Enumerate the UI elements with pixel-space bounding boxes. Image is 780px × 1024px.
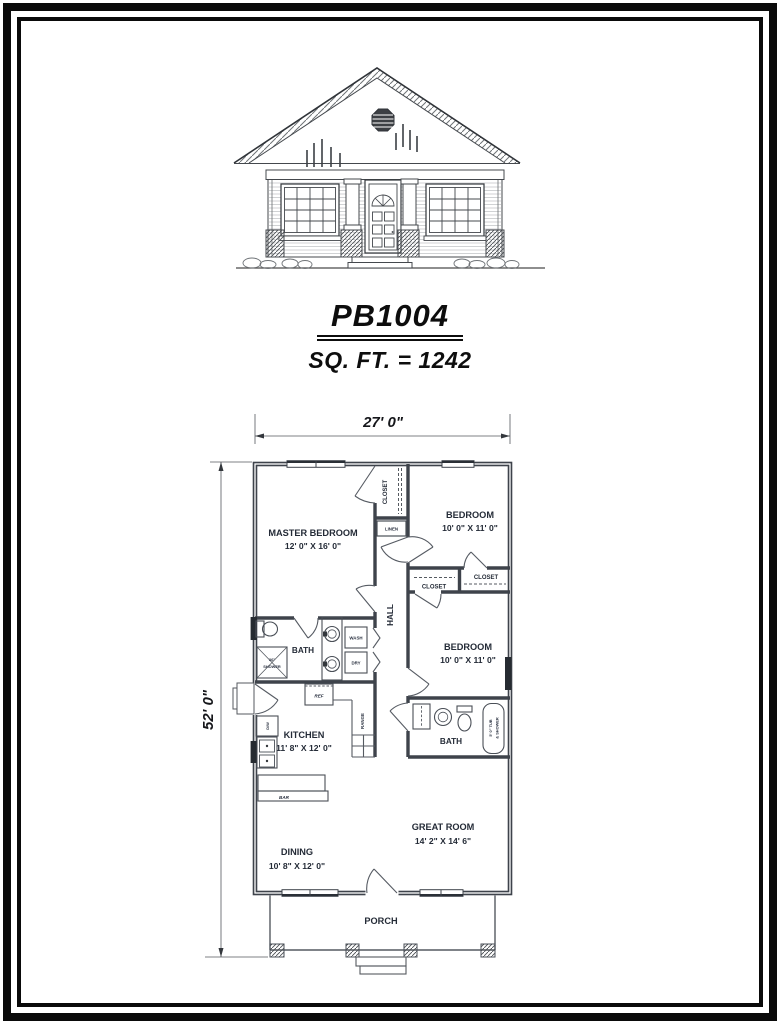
master-bath-door (294, 618, 318, 638)
hall-bath: 36" SHOWER WASH DRY BATH (256, 617, 367, 680)
master-closet-door (355, 466, 375, 503)
porch-label: PORCH (364, 916, 398, 926)
closet-right2: CLOSET (464, 575, 506, 584)
dryer-label: DRY (351, 661, 360, 666)
tub-label-1: 5' 0" TUB (488, 719, 493, 736)
closet-top-label: CLOSET (383, 480, 389, 505)
shower-36: 36" SHOWER (257, 647, 287, 678)
plan-number: PB1004 (317, 298, 463, 341)
window-bedroom2-right (505, 657, 511, 690)
bath2-door (390, 703, 408, 731)
washer-label: WASH (349, 636, 362, 641)
porch-steps (356, 957, 406, 974)
bedroom2-name: BEDROOM (444, 642, 492, 652)
porch-beam (266, 170, 504, 180)
dining-size: 10' 8" X 12' 0" (269, 861, 325, 871)
bar-counter: BAR (258, 775, 328, 801)
bedroom1-door (408, 537, 433, 563)
closet-left: CLOSET (414, 578, 455, 591)
entry-steps (348, 257, 412, 268)
window-dining-front (282, 890, 338, 897)
linen-label: LINEN (385, 527, 398, 532)
vanity-double-sink (322, 617, 342, 680)
dimension-overall-width: 27' 0" (255, 414, 510, 444)
range-label: RANGE (360, 713, 365, 729)
great-room-size: 14' 2" X 14' 6" (415, 836, 471, 846)
bar-label: BAR (279, 795, 290, 800)
closet-right-door (464, 552, 487, 568)
closet-top: CLOSET (383, 468, 402, 514)
front-door (365, 180, 401, 253)
window-bedroom1-top (442, 461, 474, 468)
window-master-top (287, 461, 345, 468)
dishwasher-box: D/W (256, 716, 278, 736)
right-bath-label: BATH (440, 737, 462, 746)
window-greatroom-front (420, 890, 463, 897)
floor-plan-drawing: 27' 0" 52' 0" (190, 395, 530, 995)
shower-label: SHOWER (263, 664, 281, 669)
hall-label: HALL (386, 604, 395, 626)
overall-width-label: 27' 0" (362, 414, 404, 431)
washer: WASH (345, 627, 367, 648)
square-footage: SQ. FT. = 1242 (0, 347, 780, 374)
shower-size-label: 36" (269, 657, 275, 662)
refrigerator-label: REF (314, 694, 323, 699)
great-room-name: GREAT ROOM (412, 822, 475, 832)
bedroom2-size: 10' 0" X 11' 0" (440, 655, 496, 665)
gable-vent (372, 109, 394, 131)
master-entry-door (356, 585, 375, 612)
hall-top-door (381, 537, 408, 562)
linen-cabinet: LINEN (377, 521, 406, 536)
dining-name: DINING (281, 847, 313, 857)
master-bedroom-size: 12' 0" X 16' 0" (285, 541, 341, 551)
kitchen-name: KITCHEN (284, 730, 325, 740)
house-front-elevation-drawing (225, 56, 555, 278)
blueprint-page: PB1004 SQ. FT. = 1242 27' 0" 52' 0" (0, 0, 780, 1024)
closet-left-label: CLOSET (422, 585, 447, 591)
counter-and-range: RANGE (333, 700, 375, 757)
hall-bath-label: BATH (292, 646, 314, 655)
dishwasher-label: D/W (265, 722, 270, 730)
closet-right-label: CLOSET (474, 575, 499, 581)
porch (270, 896, 495, 975)
right-bath: 5' 0" TUB & SHOWER BATH (413, 704, 504, 754)
overall-depth-label: 52' 0" (200, 689, 217, 730)
sink (435, 709, 452, 726)
toilet2 (457, 706, 472, 731)
side-door-opening (251, 683, 259, 715)
bedroom2-door (408, 668, 429, 696)
room-labels: MASTER BEDROOM 12' 0" X 16' 0" BEDROOM 1… (268, 510, 498, 926)
tub-shower: 5' 0" TUB & SHOWER (483, 704, 504, 754)
front-window-right (424, 184, 486, 241)
kitchen-size: 11' 8" X 12' 0" (276, 743, 332, 753)
title-block: PB1004 SQ. FT. = 1242 (0, 298, 780, 374)
refrigerator: REF (305, 684, 333, 705)
toilet (263, 622, 278, 636)
master-bedroom-name: MASTER BEDROOM (268, 528, 358, 538)
closet-left-door (415, 594, 441, 608)
front-door-opening (366, 889, 399, 898)
bedroom1-size: 10' 0" X 11' 0" (442, 523, 498, 533)
front-window-left (279, 184, 341, 241)
interior-walls (255, 464, 510, 757)
bedroom1-name: BEDROOM (446, 510, 494, 520)
dryer: DRY (345, 652, 367, 673)
gable-accent-lines (307, 124, 417, 167)
tub-label-2: & SHOWER (495, 717, 500, 739)
laundry-bifold-doors (373, 628, 380, 672)
